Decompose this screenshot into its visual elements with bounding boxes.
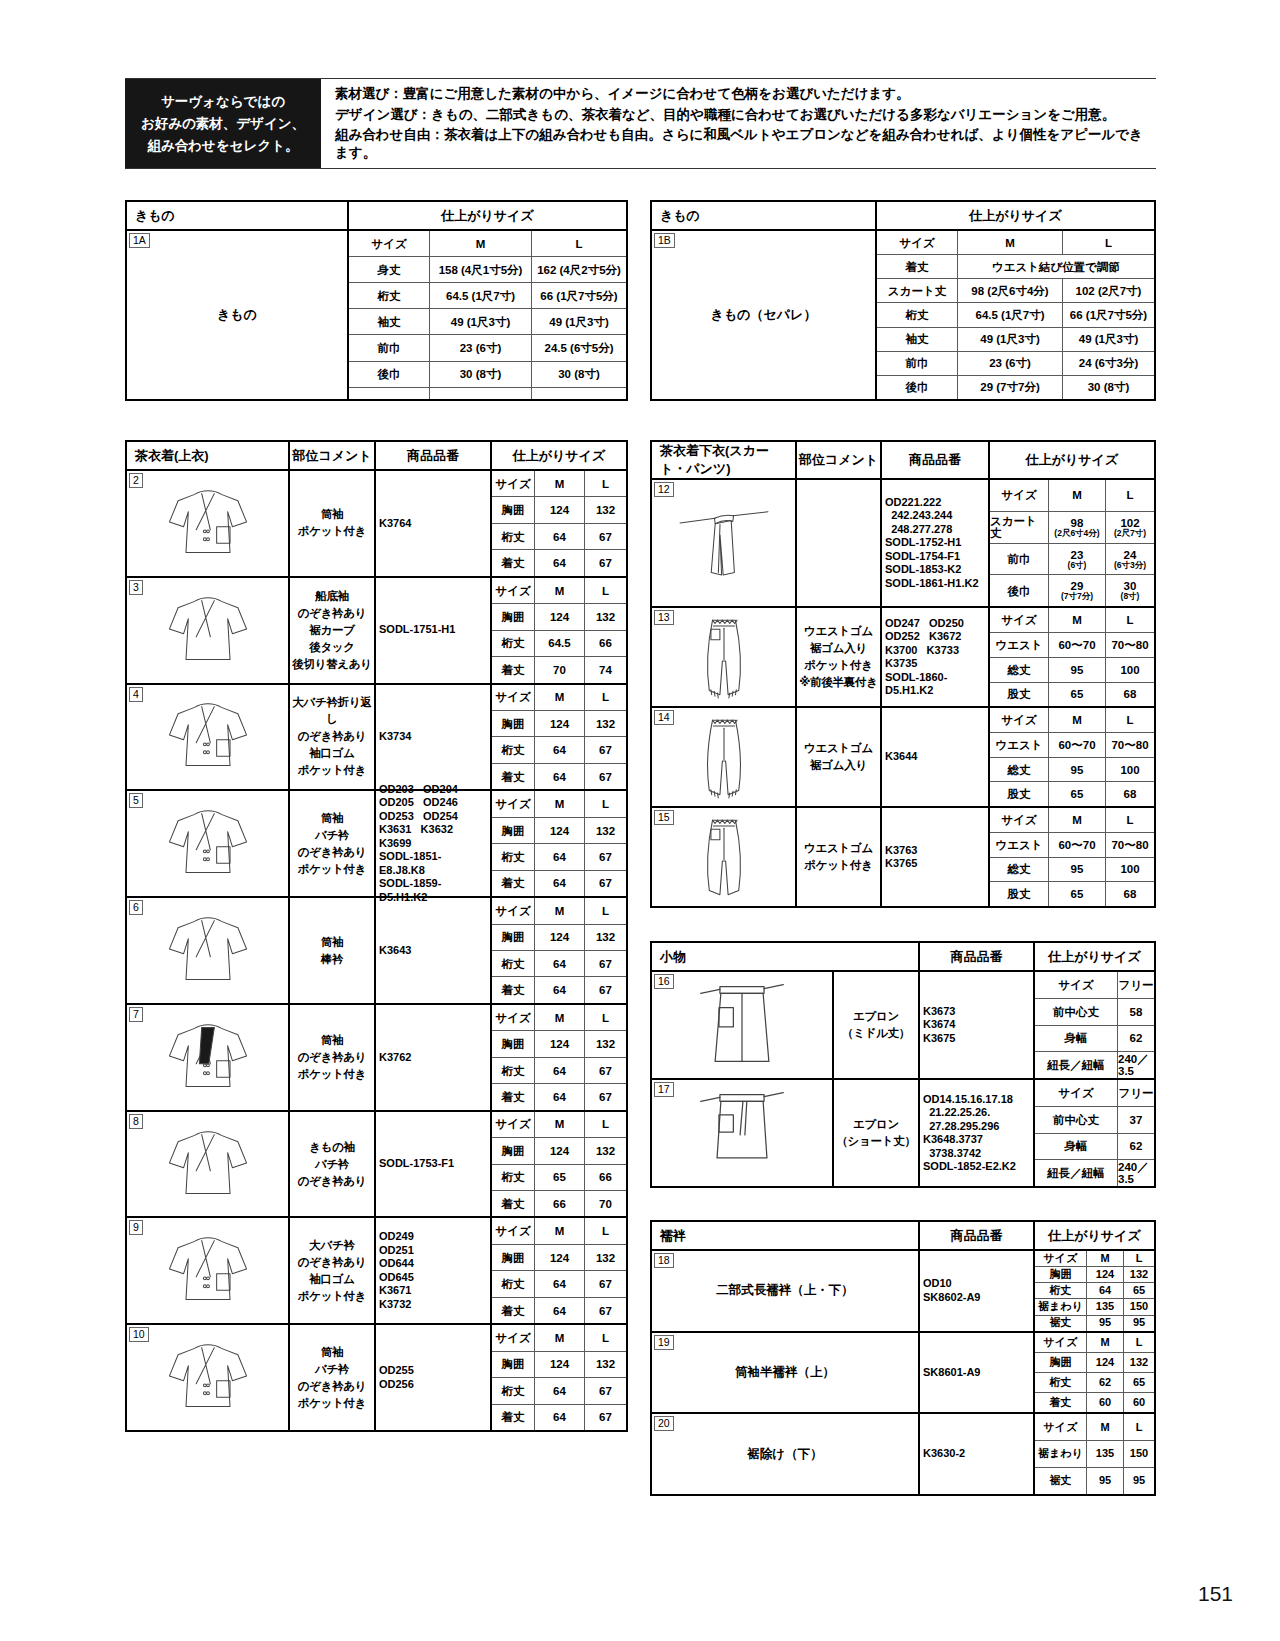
product-illustration-cell: 6 [127, 898, 288, 1003]
product-row: 7筒袖 のぞき衿あり ポケット付きK3762サイズML胸囲124132桁丈646… [127, 1003, 626, 1110]
size-row: 着丈6467 [492, 1083, 626, 1109]
size-row-label: 股丈 [990, 782, 1048, 806]
size-row-label: 着丈 [492, 1298, 534, 1323]
column-header-size: 仕上がりサイズ [1033, 943, 1154, 970]
size-row: 股丈6568 [990, 682, 1154, 707]
size-value-cell: 64 [534, 1084, 584, 1109]
size-row: 胸囲124132 [492, 1137, 626, 1163]
size-value-cell: 64.5 (1尺7寸) [957, 303, 1062, 326]
size-row-label: スカート丈 [877, 279, 957, 302]
product-illustration-cell: 9 [127, 1218, 288, 1323]
size-value-cell: 30 (8寸) [1062, 376, 1154, 399]
column-header-size: 仕上がりサイズ [1033, 1222, 1154, 1249]
product-illustration-cell: 8 [127, 1112, 288, 1217]
size-row-label: サイズ [990, 708, 1048, 732]
item-number-badge: 1A [129, 233, 150, 248]
size-value-cell: 62 [1117, 1026, 1154, 1052]
product-name-cell: 19筒袖半襦袢（上） [652, 1333, 918, 1413]
product-code-text: K3643 [379, 944, 411, 958]
size-value-cell: M [534, 1325, 584, 1350]
size-value-cell: 74 [584, 657, 626, 682]
product-code-text: K3630-2 [923, 1447, 965, 1461]
size-value-cell: 102 (2尺7寸) [1062, 279, 1154, 302]
size-value-cell: 66 (1尺7寸5分) [531, 283, 626, 308]
size-row: 後巾29(7寸7分)30(8寸) [990, 574, 1154, 606]
column-header-category: 茶衣着下衣(スカート・パンツ) [652, 442, 795, 478]
size-row-label: 裾まわり [1035, 1299, 1086, 1314]
size-value-cell: 23 (6寸) [429, 335, 531, 360]
size-value-cell: L [531, 231, 626, 256]
size-row: サイズフリー [1035, 972, 1154, 998]
size-table: サイズML胸囲124132桁丈6467着丈6467 [490, 471, 626, 576]
item-number-badge: 13 [654, 610, 674, 625]
size-value-cell: 95 [1086, 1468, 1123, 1494]
size-row: サイズML [492, 471, 626, 496]
product-code-text: K3734 [379, 730, 411, 744]
size-value-cell: 64 [534, 951, 584, 976]
size-value-cell: L [584, 578, 626, 603]
size-row: サイズML [492, 1218, 626, 1243]
product-name: 裾除け（下） [747, 1446, 822, 1463]
item-number-badge: 19 [654, 1335, 674, 1350]
size-value-cell: 64 [534, 550, 584, 575]
size-value-cell: 49 (1尺3寸) [957, 328, 1062, 351]
size-row-label: サイズ [492, 1005, 534, 1030]
product-row: 12OD221.222 242.243.244 248.277.278 SODL… [652, 480, 1154, 606]
size-value: 98 [1071, 517, 1084, 529]
table-body: 12OD221.222 242.243.244 248.277.278 SODL… [652, 480, 1154, 906]
product-illustration-cell: 15 [652, 808, 795, 906]
product-code-text: OD247 OD250 OD252 K3672 K3700 K3733 K373… [885, 617, 985, 698]
size-note: (7寸7分) [1061, 592, 1093, 601]
table-body: 2筒袖 ポケット付きK3764サイズML胸囲124132桁丈6467着丈6467… [127, 471, 626, 1430]
item-number-badge: 5 [129, 793, 143, 808]
size-row: 裾まわり135150 [1035, 1440, 1154, 1467]
size-row-label: 後巾 [877, 376, 957, 399]
size-value-cell: 64 [534, 764, 584, 789]
product-code-text: K3644 [885, 750, 917, 764]
size-value-cell: L [584, 1005, 626, 1030]
part-comment: 筒袖 ポケット付き [288, 471, 374, 576]
jacket-illustration [149, 591, 267, 670]
size-row: スカート丈98(2尺6寸4分)102(2尺7寸) [990, 511, 1154, 543]
size-row-label: 胸囲 [1035, 1267, 1086, 1282]
size-row: サイズML [492, 1112, 626, 1137]
size-value-cell: M [1048, 608, 1105, 632]
size-table: サイズML胸囲124132桁丈6467着丈6467 [490, 791, 626, 896]
product-row: 6筒袖 棒衿K3643サイズML胸囲124132桁丈6467着丈6467 [127, 896, 626, 1003]
size-value-cell: 64 [1086, 1283, 1123, 1298]
size-value-cell: 65 [1123, 1283, 1154, 1298]
size-row-label: 紐長／紐幅 [1035, 1052, 1117, 1078]
size-row: サイズML [492, 1325, 626, 1350]
size-value-cell: 67 [584, 524, 626, 549]
item-number-badge: 14 [654, 710, 674, 725]
size-value-cell: 30(8寸) [1105, 575, 1154, 606]
size-row: 身幅62 [1035, 1133, 1154, 1160]
size-row-label: サイズ [1035, 1080, 1117, 1106]
size-row-label: 胸囲 [492, 604, 534, 629]
size-value-cell: 29 (7寸7分) [957, 376, 1062, 399]
table-body: 18二部式長襦袢（上・下）OD10 SK8602-A9サイズML胸囲124132… [652, 1251, 1154, 1494]
table-header: 茶衣着(上衣) 部位コメント 商品品番 仕上がりサイズ [127, 442, 626, 471]
size-table: サイズMLウエスト60〜7070〜80総丈95100股丈6568 [988, 808, 1154, 906]
size-row: 紐長／紐幅240／3.5 [1035, 1159, 1154, 1186]
part-comment: ウエストゴム 裾ゴム入り ポケット付き ※前後半裏付き [795, 608, 880, 706]
size-value-cell: 68 [1105, 882, 1154, 906]
column-header-comment: 部位コメント [288, 442, 374, 469]
size-value-cell: 67 [584, 1298, 626, 1323]
size-value-cell: L [1105, 608, 1154, 632]
size-row-label: スカート丈 [990, 512, 1048, 543]
size-row: サイズML [1035, 1414, 1154, 1440]
item-number-badge: 6 [129, 900, 143, 915]
size-value-cell: 60〜70 [1048, 833, 1105, 857]
size-value-cell: 124 [534, 1352, 584, 1377]
size-row-label: サイズ [990, 608, 1048, 632]
size-note: (6寸) [1068, 561, 1087, 570]
size-row-label: サイズ [1035, 1333, 1086, 1352]
size-row: 前中心丈37 [1035, 1106, 1154, 1133]
intro-text-block: 素材選び：豊富にご用意した素材の中から、イメージに合わせて色柄をお選びいただけま… [321, 79, 1156, 168]
size-table: サイズML胸囲124132桁丈6265着丈6060 [1033, 1333, 1154, 1413]
size-value-cell: M [1048, 480, 1105, 511]
size-row: サイズML [492, 898, 626, 923]
size-value-cell: フリー [1117, 972, 1154, 998]
column-header-size: 仕上がりサイズ [490, 442, 626, 469]
product-code: OD255 OD256 [374, 1325, 490, 1430]
size-value-cell: 70 [534, 657, 584, 682]
product-code: SK8601-A9 [918, 1333, 1033, 1413]
size-row-label: 着丈 [492, 977, 534, 1002]
product-row: 5筒袖 バチ衿 のぞき衿あり ポケット付きOD203 OD204 OD205 O… [127, 789, 626, 896]
size-value-cell: 98 (2尺6寸4分) [957, 279, 1062, 302]
column-header-category: 茶衣着(上衣) [127, 442, 288, 469]
size-row-label: 胸囲 [1035, 1353, 1086, 1372]
product-illustration-cell: 12 [652, 480, 795, 606]
product-code: K3763 K3765 [880, 808, 988, 906]
product-code-text: OD10 SK8602-A9 [923, 1277, 980, 1304]
size-value-cell: L [1062, 231, 1154, 254]
product-row: 13ウエストゴム 裾ゴム入り ポケット付き ※前後半裏付きOD247 OD250… [652, 606, 1154, 706]
size-row-label: 前中心丈 [1035, 1107, 1117, 1133]
size-row: 袖丈49 (1尺3寸)49 (1尺3寸) [349, 308, 626, 334]
size-value-cell: 24.5 (6寸5分) [531, 335, 626, 360]
size-row: 桁丈64.566 [492, 630, 626, 656]
part-comment: きもの袖 バチ衿 のぞき衿あり [288, 1112, 374, 1217]
product-name: きもの（セパレ） [711, 306, 817, 324]
size-table: サイズML胸囲124132桁丈6467着丈6467 [490, 898, 626, 1003]
size-table: サイズMLスカート丈98(2尺6寸4分)102(2尺7寸)前巾23(6寸)24(… [988, 480, 1154, 606]
size-value-cell: 67 [584, 764, 626, 789]
column-header-code: 商品品番 [918, 943, 1033, 970]
size-value-cell: 49 (1尺3寸) [429, 309, 531, 334]
product-name-cell: 18二部式長襦袢（上・下） [652, 1251, 918, 1331]
table-body: 1AきものサイズML身丈158 (4尺1寸5分)162 (4尺2寸5分)桁丈64… [127, 231, 626, 399]
size-value-cell: 95 [1048, 758, 1105, 782]
size-row-label: 胸囲 [492, 1245, 534, 1270]
size-value-cell: 29(7寸7分) [1048, 575, 1105, 606]
size-value-cell: 49 (1尺3寸) [531, 309, 626, 334]
product-code: K3764 [374, 471, 490, 576]
size-row: 桁丈6467 [492, 736, 626, 762]
size-row-label: サイズ [349, 231, 429, 256]
size-value-cell: 64 [534, 1058, 584, 1083]
size-row-label: 着丈 [492, 764, 534, 789]
size-value: 102 [1120, 517, 1139, 529]
size-value-cell [429, 388, 531, 399]
size-row: スカート丈98 (2尺6寸4分)102 (2尺7寸) [877, 278, 1154, 302]
size-row-label: 総丈 [990, 658, 1048, 682]
part-comment: エプロン （ミドル丈） [832, 972, 918, 1078]
size-row: 桁丈6467 [492, 1270, 626, 1296]
size-value-cell: 132 [584, 925, 626, 950]
size-value-cell: 23 (6寸) [957, 352, 1062, 375]
size-row-label: 裾丈 [1035, 1468, 1086, 1494]
size-value-cell: 95 [1123, 1468, 1154, 1494]
size-row-label: 胸囲 [492, 1138, 534, 1163]
size-value-cell: 150 [1123, 1441, 1154, 1467]
size-value-cell: 65 [1123, 1373, 1154, 1392]
table-header: 小物 商品品番 仕上がりサイズ [652, 943, 1154, 972]
item-number-badge: 7 [129, 1007, 143, 1022]
size-row: サイズML [492, 578, 626, 603]
size-value-cell: 95 [1048, 858, 1105, 882]
size-row: 後巾29 (7寸7分)30 (8寸) [877, 375, 1154, 399]
part-comment: ウエストゴム ポケット付き [795, 808, 880, 906]
size-row: 胸囲124132 [492, 710, 626, 736]
size-row-label: 前巾 [349, 335, 429, 360]
size-row-label: サイズ [492, 685, 534, 710]
size-value-cell: 67 [584, 1378, 626, 1403]
size-value-cell: 124 [534, 1245, 584, 1270]
skirt-illustration [664, 497, 784, 589]
size-value-cell: 67 [584, 1271, 626, 1296]
size-value-cell: 62 [1117, 1134, 1154, 1160]
size-value-cell: 66 (1尺7寸5分) [1062, 303, 1154, 326]
size-row: 着丈6467 [492, 1404, 626, 1430]
size-row-label: 胸囲 [492, 497, 534, 522]
size-row-label: サイズ [492, 791, 534, 816]
size-row: 着丈6670 [492, 1190, 626, 1216]
komono-table: 小物 商品品番 仕上がりサイズ 16エプロン （ミドル丈）K3673 K3674… [650, 941, 1156, 1188]
product-code: K3644 [880, 708, 988, 806]
size-value-cell: M [534, 1218, 584, 1243]
size-row-label: サイズ [877, 231, 957, 254]
size-value-cell: 60〜70 [1048, 733, 1105, 757]
intro-line-combination: 組み合わせ自由：茶衣着は上下の組み合わせも自由。さらに和風ベルトやエプロンなどを… [335, 126, 1156, 162]
jacket-dark-illustration [149, 1018, 267, 1097]
size-row: 桁丈6467 [492, 1057, 626, 1083]
product-code: K3762 [374, 1005, 490, 1110]
product-code-text: K3763 K3765 [885, 844, 917, 871]
product-row: 20裾除け（下）K3630-2サイズML裾まわり135150裾丈9595 [652, 1412, 1154, 1494]
size-row-label: 紐長／紐幅 [1035, 1160, 1117, 1186]
table-header: 襦袢 商品品番 仕上がりサイズ [652, 1222, 1154, 1251]
size-row: 桁丈6467 [492, 843, 626, 869]
size-row: 胸囲124132 [492, 496, 626, 522]
size-value-cell: 162 (4尺2寸5分) [531, 257, 626, 282]
item-number-badge: 12 [654, 482, 674, 497]
item-number-badge: 1B [654, 233, 675, 248]
size-row-label: 胸囲 [492, 711, 534, 736]
size-row-label: 身幅 [1035, 1134, 1117, 1160]
size-value-cell: 70 [584, 1191, 626, 1216]
size-row-label: 裾まわり [1035, 1441, 1086, 1467]
size-value-cell [531, 388, 626, 399]
pants-a-illustration [681, 612, 767, 702]
size-value-cell: 240／3.5 [1117, 1160, 1154, 1186]
size-value-cell: 64 [534, 737, 584, 762]
size-row: 着丈6467 [492, 976, 626, 1002]
size-row: 着丈6060 [1035, 1392, 1154, 1412]
product-row: 16エプロン （ミドル丈）K3673 K3674 K3675サイズフリー前中心丈… [652, 972, 1154, 1078]
product-row: 4大バチ衿折り返し のぞき衿あり 袖口ゴム ポケット付きK3734サイズML胸囲… [127, 683, 626, 790]
size-value-cell: 64.5 (1尺7寸) [429, 283, 531, 308]
part-comment: 大バチ衿折り返し のぞき衿あり 袖口ゴム ポケット付き [288, 685, 374, 790]
size-row: サイズML [877, 231, 1154, 254]
size-value-cell: 132 [584, 1031, 626, 1056]
size-row: 着丈6467 [492, 549, 626, 575]
size-row-label: 着丈 [492, 871, 534, 896]
part-comment: 船底袖 のぞき衿あり 裾カーブ 後タック 後切り替えあり [288, 578, 374, 683]
size-row: 着丈6467 [492, 870, 626, 896]
product-code-text: SODL-1753-F1 [379, 1157, 454, 1171]
size-value-cell: 132 [584, 1138, 626, 1163]
size-value-cell: 132 [584, 1352, 626, 1377]
size-row-label: 着丈 [877, 255, 957, 278]
size-value-cell: 66 [584, 1165, 626, 1190]
size-value-cell: 24(6寸3分) [1105, 544, 1154, 575]
catalog-page: サーヴォならではの お好みの素材、デザイン、 組み合わせをセレクト。 素材選び：… [0, 0, 1280, 1641]
size-row-label: サイズ [990, 808, 1048, 832]
jacket-pocket-illustration [149, 697, 267, 776]
size-value-cell: M [1086, 1414, 1123, 1440]
size-value-cell: M [534, 471, 584, 496]
size-value-cell: 67 [584, 1058, 626, 1083]
size-row-label: 身幅 [1035, 1026, 1117, 1052]
size-row-label: 身丈 [349, 257, 429, 282]
part-comment: ウエストゴム 裾ゴム入り [795, 708, 880, 806]
size-value-cell: 124 [1086, 1267, 1123, 1282]
size-value-cell: 124 [1086, 1353, 1123, 1372]
product-name: きもの [217, 306, 257, 324]
product-illustration-cell: 3 [127, 578, 288, 683]
product-row: 15ウエストゴム ポケット付きK3763 K3765サイズMLウエスト60〜70… [652, 806, 1154, 906]
size-value-cell: フリー [1117, 1080, 1154, 1106]
size-value-cell: 132 [584, 497, 626, 522]
size-row: 桁丈64.5 (1尺7寸)66 (1尺7寸5分) [877, 302, 1154, 326]
size-value-cell: 60 [1123, 1393, 1154, 1412]
size-row-label: サイズ [492, 898, 534, 923]
product-code-text: OD249 OD251 OD644 OD645 K3671 K3732 [379, 1230, 414, 1311]
apron-illustration [686, 977, 798, 1073]
size-table: サイズML胸囲124132桁丈6467着丈6467 [490, 685, 626, 790]
size-value-cell: L [584, 791, 626, 816]
size-value-cell: L [1123, 1414, 1154, 1440]
size-row-label: 着丈 [492, 1084, 534, 1109]
size-value-cell: 64 [534, 1271, 584, 1296]
size-table: サイズフリー前中心丈37身幅62紐長／紐幅240／3.5 [1033, 1080, 1154, 1186]
size-row-label: サイズ [492, 471, 534, 496]
column-header-code: 商品品番 [880, 442, 988, 478]
size-row-label: 着丈 [492, 550, 534, 575]
size-value-cell: M [534, 578, 584, 603]
size-value-cell: 240／3.5 [1117, 1052, 1154, 1078]
item-number-badge: 9 [129, 1220, 143, 1235]
jacket-pocket-illustration [149, 484, 267, 563]
size-note: (2尺7寸) [1114, 529, 1146, 538]
size-value-cell: 24 (6寸3分) [1062, 352, 1154, 375]
size-row: 袖丈49 (1尺3寸)49 (1尺3寸) [877, 327, 1154, 351]
kimono-row: 1Bきもの（セパレ）サイズML着丈ウエスト結び位置で調節スカート丈98 (2尺6… [652, 231, 1154, 399]
size-value-cell: 100 [1105, 758, 1154, 782]
product-code: K3734 [374, 685, 490, 790]
size-value-cell: 67 [584, 871, 626, 896]
intro-header: サーヴォならではの お好みの素材、デザイン、 組み合わせをセレクト。 素材選び：… [125, 78, 1156, 169]
size-row-label: 桁丈 [492, 631, 534, 656]
size-value-cell: 124 [534, 604, 584, 629]
size-row-label: 桁丈 [492, 951, 534, 976]
size-value-cell: 135 [1086, 1441, 1123, 1467]
size-value-cell: 132 [1123, 1353, 1154, 1372]
size-value-cell: 95 [1086, 1316, 1123, 1331]
product-code-text: SK8601-A9 [923, 1366, 980, 1380]
size-row-label: 桁丈 [492, 737, 534, 762]
product-code: OD203 OD204 OD205 OD246 OD253 OD254 K363… [374, 791, 490, 896]
size-row: 着丈7074 [492, 656, 626, 682]
kimono-1a-table: きもの 仕上がりサイズ 1AきものサイズML身丈158 (4尺1寸5分)162 … [125, 200, 628, 401]
size-row-label: ウエスト [990, 633, 1048, 657]
size-value-cell: 64 [534, 524, 584, 549]
item-number-badge: 10 [129, 1327, 149, 1342]
size-row: 紐長／紐幅240／3.5 [1035, 1051, 1154, 1078]
product-code: OD247 OD250 OD252 K3672 K3700 K3733 K373… [880, 608, 988, 706]
product-code-text: OD221.222 242.243.244 248.277.278 SODL-1… [885, 496, 979, 591]
table-header: 茶衣着下衣(スカート・パンツ) 部位コメント 商品品番 仕上がりサイズ [652, 442, 1154, 480]
size-row: 身丈158 (4尺1寸5分)162 (4尺2寸5分) [349, 256, 626, 282]
size-value-cell: 67 [584, 844, 626, 869]
size-row: 股丈6568 [990, 881, 1154, 906]
page-number: 151 [1198, 1582, 1233, 1606]
size-value-cell: M [1086, 1333, 1123, 1352]
size-row: サイズML [492, 1005, 626, 1030]
size-value-cell: 100 [1105, 858, 1154, 882]
size-note: (2尺6寸4分) [1054, 529, 1099, 538]
size-row-label: 桁丈 [492, 1378, 534, 1403]
size-row: 桁丈6467 [492, 950, 626, 976]
jacket-pocket-illustration [149, 804, 267, 883]
size-row-label: 後巾 [990, 575, 1048, 606]
size-value-cell: L [584, 1112, 626, 1137]
product-code: K3673 K3674 K3675 [918, 972, 1033, 1078]
size-value-cell: 68 [1105, 683, 1154, 707]
size-value-cell: 68 [1105, 782, 1154, 806]
size-value-cell: L [584, 1325, 626, 1350]
juban-table: 襦袢 商品品番 仕上がりサイズ 18二部式長襦袢（上・下）OD10 SK8602… [650, 1220, 1156, 1496]
size-row-label: 胸囲 [492, 1031, 534, 1056]
size-value-cell: 67 [584, 1405, 626, 1430]
product-code: OD14.15.16.17.18 21.22.25.26. 27.28.295.… [918, 1080, 1033, 1186]
item-number-badge: 16 [654, 974, 674, 989]
column-header-size: 仕上がりサイズ [875, 202, 1154, 229]
item-number-badge: 17 [654, 1082, 674, 1097]
size-value-cell: 64 [534, 1378, 584, 1403]
select-concept-box: サーヴォならではの お好みの素材、デザイン、 組み合わせをセレクト。 [125, 79, 321, 168]
jacket-pocket-illustration [149, 1231, 267, 1310]
size-value-cell: L [584, 685, 626, 710]
column-header-category: 襦袢 [652, 1222, 918, 1249]
